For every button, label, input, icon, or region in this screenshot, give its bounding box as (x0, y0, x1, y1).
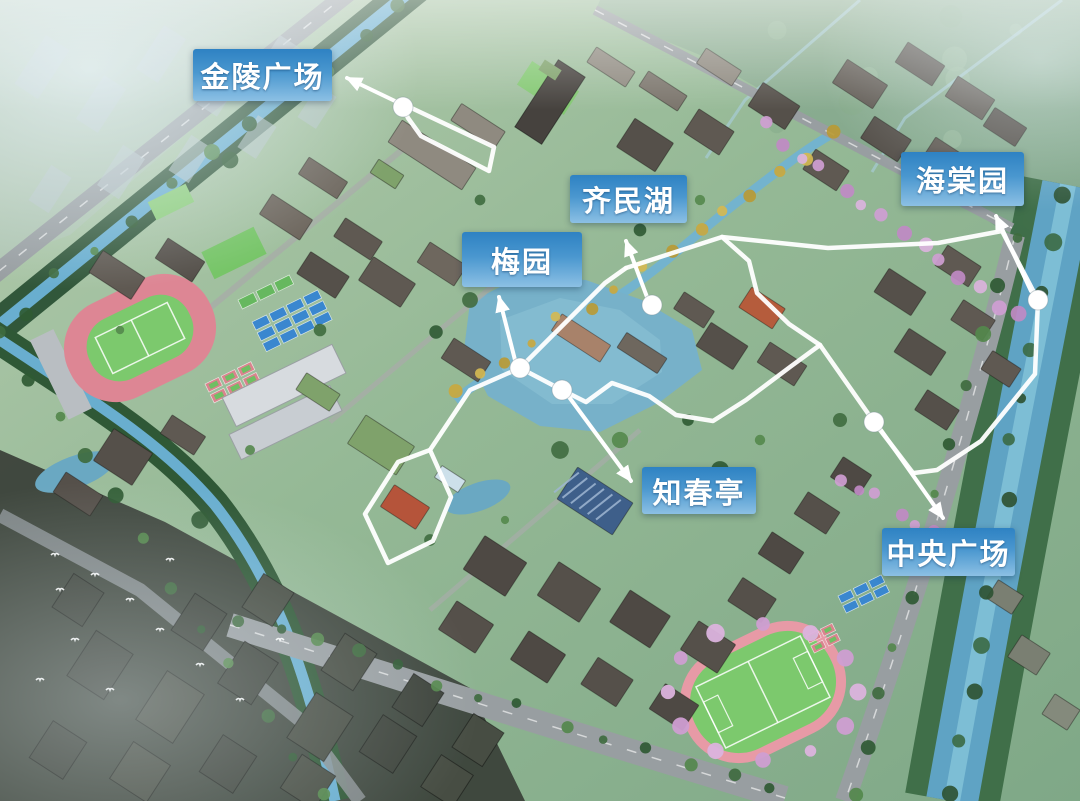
roadside-trees (930, 490, 938, 498)
campus-trees (755, 435, 765, 445)
aerial-render (0, 0, 1080, 801)
campus-trees (612, 432, 628, 448)
campus-trees (116, 326, 124, 334)
blossom-trees (755, 752, 771, 768)
golden-trees (586, 303, 598, 315)
blossom-trees (805, 745, 816, 756)
blossom-trees (897, 226, 912, 241)
blossom-trees (835, 474, 847, 486)
blossom-trees (837, 650, 854, 667)
blossom-trees (812, 159, 824, 171)
blossom-trees (874, 208, 887, 221)
label-haitang-garden: 海棠园 (901, 152, 1024, 206)
roadside-trees (990, 278, 1005, 293)
campus-trees (695, 195, 705, 205)
riverbank-trees (979, 585, 993, 599)
label-central-plaza: 中央广场 (882, 528, 1015, 576)
golden-trees (499, 357, 510, 368)
roadside-trees (1013, 233, 1023, 243)
golden-trees (475, 368, 485, 378)
label-qimin-lake: 齐民湖 (570, 175, 687, 223)
blossom-trees (776, 138, 789, 151)
route-stop-node-central-plaza (864, 412, 884, 432)
blossom-trees (661, 685, 675, 699)
canal-trees (56, 412, 66, 422)
route-stop-node-jinling-plaza (393, 97, 413, 117)
label-mei-garden: 梅园 (462, 232, 582, 287)
riverbank-trees (967, 683, 983, 699)
boulevard-trees (561, 721, 573, 733)
blossom-trees (797, 154, 807, 164)
roadside-trees (872, 687, 884, 699)
campus-trees (475, 195, 486, 206)
boulevard-trees (640, 742, 651, 753)
blossom-trees (854, 485, 864, 495)
campus-trees (314, 324, 327, 337)
campus-trees (462, 292, 478, 308)
blossom-trees (1011, 306, 1027, 322)
roadside-trees (888, 643, 897, 652)
label-zhichun-pavilion: 知春亭 (642, 467, 756, 514)
roadside-trees (905, 591, 918, 604)
blossom-trees (896, 509, 909, 522)
riverbank-trees (1002, 492, 1017, 507)
blossom-trees (951, 271, 966, 286)
golden-trees (774, 166, 785, 177)
blossom-trees (992, 300, 1007, 315)
golden-trees (827, 125, 841, 139)
blossom-trees (840, 184, 854, 198)
blossom-trees (803, 625, 819, 641)
blossom-trees (850, 684, 867, 701)
canal-trees (19, 308, 32, 321)
campus-trees (833, 413, 847, 427)
campus-aerial-map: 金陵广场 齐民湖 海棠园 梅园 知春亭 中央广场 (0, 0, 1080, 801)
blossom-trees (672, 717, 689, 734)
riverbank-trees (973, 637, 990, 654)
golden-trees (528, 339, 536, 347)
campus-trees (551, 441, 569, 459)
roadside-trees (861, 740, 876, 755)
route-stop-node-zhichun-pavilion (552, 380, 572, 400)
boulevard-trees (512, 698, 522, 708)
boulevard-trees (685, 758, 698, 771)
blossom-trees (836, 717, 854, 735)
riverbank-trees (952, 734, 965, 747)
blossom-trees (707, 743, 723, 759)
riverbank-trees (1003, 433, 1015, 445)
blossom-trees (760, 116, 772, 128)
blossom-trees (706, 624, 724, 642)
route-stop-node-qimin-lake (642, 295, 662, 315)
roadside-trees (943, 438, 955, 450)
blossom-trees (932, 253, 944, 265)
route-stop-node-mei-garden (510, 358, 530, 378)
blossom-trees (869, 488, 880, 499)
campus-trees (429, 325, 443, 339)
boulevard-trees (729, 768, 742, 781)
campus-trees (245, 445, 255, 455)
golden-trees (449, 384, 463, 398)
campus-trees (634, 224, 647, 237)
roadside-trees (975, 326, 991, 342)
blossom-trees (974, 280, 987, 293)
roadside-trees (961, 380, 972, 391)
golden-trees (609, 285, 618, 294)
campus-trees (501, 516, 509, 524)
blossom-trees (856, 200, 867, 211)
boulevard-trees (599, 735, 608, 744)
blossom-trees (674, 651, 688, 665)
canal-trees (22, 374, 35, 387)
blossom-trees (756, 617, 770, 631)
canal-trees (78, 448, 93, 463)
golden-trees (743, 190, 756, 203)
golden-trees (717, 206, 727, 216)
riverbank-trees (1044, 233, 1062, 251)
boulevard-trees (764, 783, 774, 793)
golden-trees (551, 312, 561, 322)
route-stop-node-haitang-garden (1028, 290, 1048, 310)
label-jinling-plaza: 金陵广场 (193, 49, 332, 101)
golden-trees (696, 223, 709, 236)
